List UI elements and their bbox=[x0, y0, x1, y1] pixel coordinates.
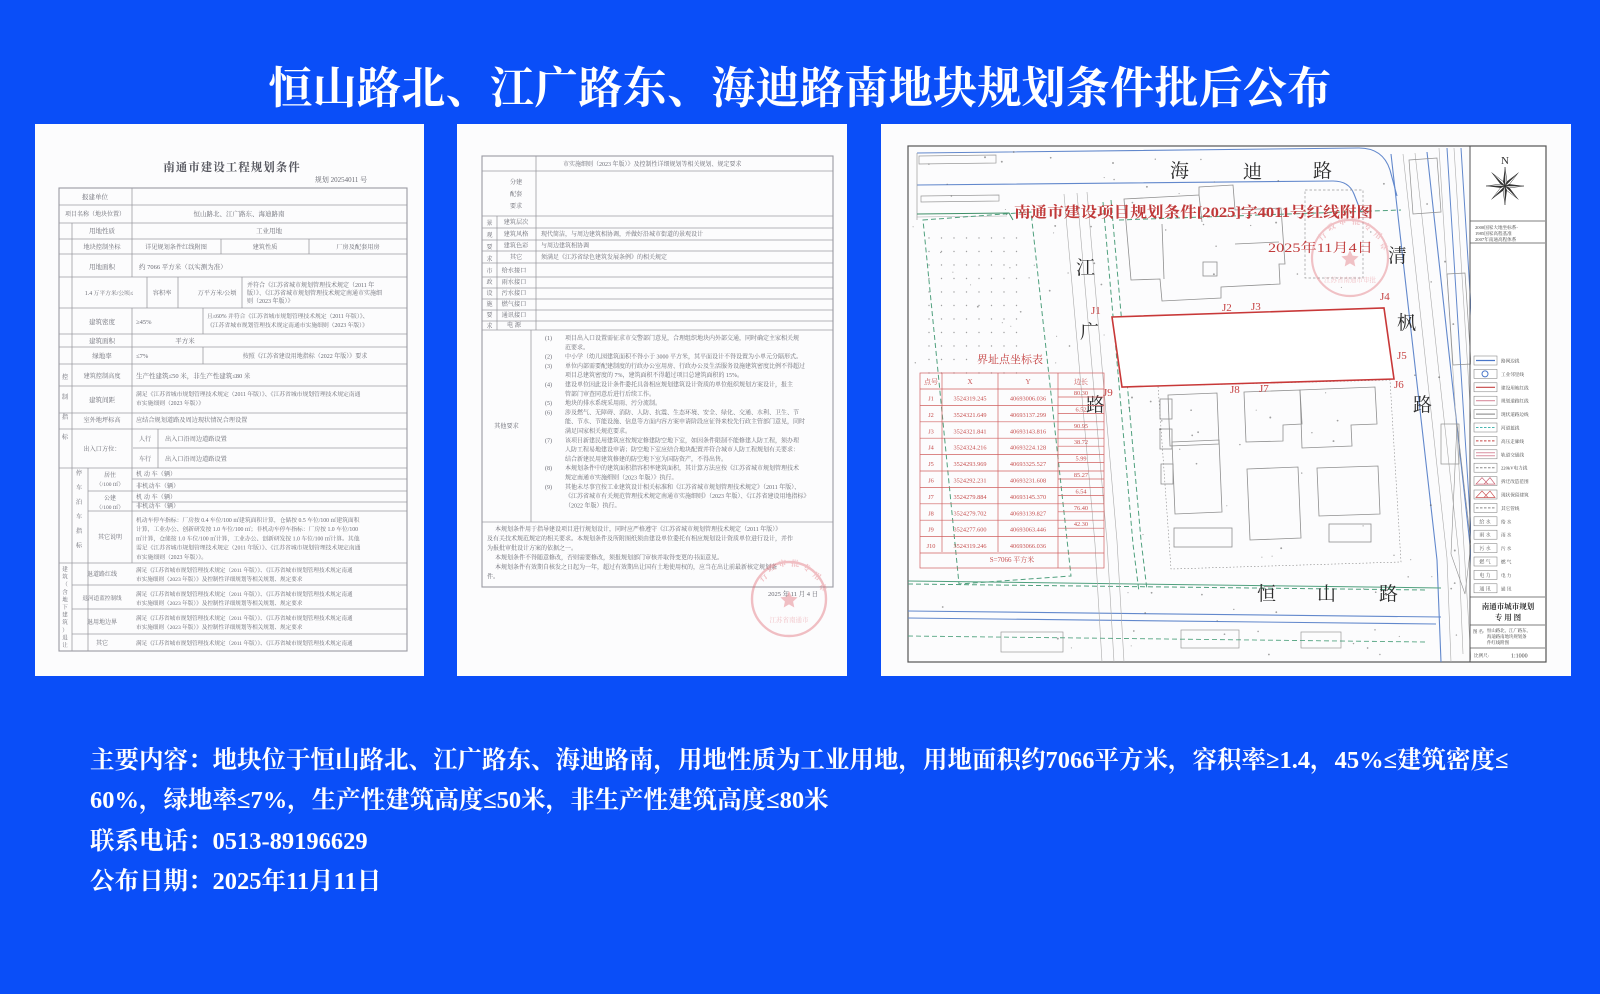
svg-text:《江苏省城市有关规范管理技术规定南通市实施细则》（2023: 《江苏省城市有关规范管理技术规定南通市实施细则》（2023 年版）、《江苏省建设… bbox=[565, 492, 810, 500]
svg-text:现代简洁，与周边建筑相协调，并做好沿城市街道的景观设计: 现代简洁，与周边建筑相协调，并做好沿城市街道的景观设计 bbox=[541, 230, 703, 238]
svg-text:且≤60% 并符合《江苏省城市规划管理技术规定（2011: 且≤60% 并符合《江苏省城市规划管理技术规定（2011 年版）》、 bbox=[207, 312, 368, 320]
svg-text:清: 清 bbox=[1388, 245, 1407, 267]
svg-text:退道路红线: 退道路红线 bbox=[87, 570, 117, 578]
svg-text:应结合规划道路及周边现状情况合理设置: 应结合规划道路及周边现状情况合理设置 bbox=[136, 416, 247, 424]
svg-text:按照《江苏省建设用地指标（2022 年版）》要求: 按照《江苏省建设用地指标（2022 年版）》要求 bbox=[243, 352, 368, 360]
svg-text:要: 要 bbox=[486, 243, 492, 251]
svg-text:电 源: 电 源 bbox=[507, 321, 522, 329]
svg-text:范要求。: 范要求。 bbox=[565, 343, 589, 351]
svg-text:停: 停 bbox=[76, 469, 83, 477]
svg-text:指: 指 bbox=[62, 413, 68, 421]
svg-text:机动车停车指标：厂房按 0.4 车位/100 ㎡建筑面积计算: 机动车停车指标：厂房按 0.4 车位/100 ㎡建筑面积计算，仓储按 0.5 车… bbox=[136, 516, 360, 524]
svg-text:满足《江苏省城市规划管理技术规定（2011 年版）》、《江苏: 满足《江苏省城市规划管理技术规定（2011 年版）》、《江苏省城市规划管理技术规… bbox=[136, 390, 361, 398]
svg-text:3524277.600: 3524277.600 bbox=[953, 527, 986, 534]
svg-text:40693325.527: 40693325.527 bbox=[1010, 461, 1046, 468]
svg-text:标: 标 bbox=[76, 542, 83, 550]
svg-text:电 力: 电 力 bbox=[1479, 572, 1490, 579]
svg-text:件红线附图: 件红线附图 bbox=[1487, 639, 1510, 646]
svg-text:(9): (9) bbox=[545, 484, 552, 491]
svg-text:J6: J6 bbox=[928, 478, 934, 485]
svg-text:J8: J8 bbox=[928, 510, 934, 517]
svg-text:南通市建设项目规划条件[2025]字4011号红线附图: 南通市建设项目规划条件[2025]字4011号红线附图 bbox=[1014, 203, 1373, 221]
svg-text:2000国家大地坐标系-: 2000国家大地坐标系- bbox=[1475, 224, 1518, 231]
svg-text:2025年11月4日: 2025年11月4日 bbox=[1268, 240, 1373, 255]
svg-text:制: 制 bbox=[62, 393, 68, 401]
svg-text:其他未尽事宜按工业建筑设计相关标准和《江苏省城市规划管理技术: 其他未尽事宜按工业建筑设计相关标准和《江苏省城市规划管理技术规定》（2011 年… bbox=[565, 483, 800, 491]
svg-text:1:1000: 1:1000 bbox=[1511, 654, 1528, 660]
svg-text:其它: 其它 bbox=[510, 253, 522, 261]
svg-text:界址点坐标表: 界址点坐标表 bbox=[977, 352, 1043, 366]
svg-text:高压走廊线: 高压走廊线 bbox=[1501, 438, 1524, 445]
svg-text:项目总建筑密度的 7%，建筑面积不得超过项目总建筑面积的 1: 项目总建筑密度的 7%，建筑面积不得超过项目总建筑面积的 15%。 bbox=[565, 371, 743, 379]
svg-text:工业用地: 工业用地 bbox=[256, 226, 283, 235]
svg-text:85.27: 85.27 bbox=[1074, 472, 1088, 479]
svg-text:燃气接口: 燃气接口 bbox=[502, 300, 527, 308]
svg-text:边长: 边长 bbox=[1074, 377, 1088, 386]
svg-text:分建: 分建 bbox=[510, 178, 523, 186]
svg-text:给水接口: 给水接口 bbox=[502, 267, 527, 275]
svg-text:40693063.446: 40693063.446 bbox=[1010, 527, 1046, 534]
svg-text:2025 年 11 月 4 日: 2025 年 11 月 4 日 bbox=[768, 589, 818, 598]
svg-text:市实施细则（2023 年版）》及控制性详细规划等相关规划、规: 市实施细则（2023 年版）》及控制性详细规划等相关规划、规定要求 bbox=[563, 160, 742, 168]
svg-text:绿地率: 绿地率 bbox=[92, 351, 112, 360]
svg-text:图 名:: 图 名: bbox=[1473, 628, 1484, 635]
svg-text:路: 路 bbox=[1413, 394, 1432, 416]
svg-text:地块的排水系统采用雨、污分流制。: 地块的排水系统采用雨、污分流制。 bbox=[565, 399, 661, 407]
svg-text:政: 政 bbox=[486, 278, 492, 286]
svg-text:泊: 泊 bbox=[76, 498, 82, 506]
svg-text:标: 标 bbox=[62, 433, 69, 441]
svg-text:广: 广 bbox=[1080, 321, 1099, 343]
svg-text:燃 气: 燃 气 bbox=[1501, 559, 1512, 566]
svg-text:90.95: 90.95 bbox=[1074, 423, 1088, 430]
svg-text:40693006.036: 40693006.036 bbox=[1010, 396, 1046, 403]
svg-text:版）》、《江苏省城市规划管理技术规定南通市实施细: 版）》、《江苏省城市规划管理技术规定南通市实施细 bbox=[247, 289, 382, 297]
svg-text:≥45%: ≥45% bbox=[136, 319, 152, 326]
svg-text:J3: J3 bbox=[928, 428, 934, 435]
svg-text:（/100 ㎡）: （/100 ㎡） bbox=[96, 503, 124, 511]
svg-text:1.4 万平方米/公顷≤: 1.4 万平方米/公顷≤ bbox=[85, 289, 133, 297]
svg-text:满足国家相关规范要求。: 满足国家相关规范要求。 bbox=[565, 427, 631, 435]
svg-text:给 水: 给 水 bbox=[1501, 518, 1512, 525]
svg-text:让: 让 bbox=[62, 641, 68, 649]
svg-text:40693224.128: 40693224.128 bbox=[1010, 445, 1046, 452]
svg-text:建: 建 bbox=[62, 565, 68, 573]
svg-text:76.40: 76.40 bbox=[1074, 505, 1088, 512]
svg-text:建设单位因此设计条件委托具备相应规划建筑设计资质的单位组织规: 建设单位因此设计条件委托具备相应规划建筑设计资质的单位组织规划方案设计，报主 bbox=[565, 381, 793, 389]
svg-text:建筑面积: 建筑面积 bbox=[89, 336, 116, 345]
svg-text:报建单位: 报建单位 bbox=[82, 192, 109, 201]
svg-text:退用地边界: 退用地边界 bbox=[87, 618, 117, 626]
svg-text:机 动 车（辆）: 机 动 车（辆） bbox=[136, 470, 176, 478]
svg-text:3524321.649: 3524321.649 bbox=[953, 412, 986, 419]
svg-text:3524321.841: 3524321.841 bbox=[953, 428, 986, 435]
svg-text:生产性建筑≤50 米，非生产性建筑≤80 米: 生产性建筑≤50 米，非生产性建筑≤80 米 bbox=[136, 371, 251, 380]
svg-text:40693137.299: 40693137.299 bbox=[1010, 412, 1046, 419]
svg-text:项目出入口设置需征求市交警部门意见，合理组织地块内外部交通，: 项目出入口设置需征求市交警部门意见，合理组织地块内外部交通，同时确定主家相关规 bbox=[565, 334, 799, 342]
svg-text:详见规划条件红线附图: 详见规划条件红线附图 bbox=[145, 243, 207, 251]
svg-text:南通市城市规划: 南通市城市规划 bbox=[1482, 601, 1535, 611]
svg-text:《江苏省城市规划管理技术规定南通市实施细则（2023 年版）: 《江苏省城市规划管理技术规定南通市实施细则（2023 年版）》 bbox=[207, 321, 368, 329]
svg-text:给 水: 给 水 bbox=[1479, 518, 1490, 525]
svg-text:审: 审 bbox=[1338, 217, 1347, 227]
svg-text:计算，工业办公、创新研发按 1.0 车位/100 ㎡；非机动: 计算，工业办公、创新研发按 1.0 车位/100 ㎡；非机动车停车指标：厂房按 … bbox=[136, 525, 358, 533]
svg-text:38.72: 38.72 bbox=[1074, 439, 1088, 446]
svg-text:专: 专 bbox=[801, 561, 812, 573]
svg-text:海: 海 bbox=[1170, 160, 1189, 182]
svg-text:40693066.036: 40693066.036 bbox=[1010, 543, 1046, 550]
svg-text:容积率: 容积率 bbox=[153, 289, 172, 297]
svg-text:≤7%: ≤7% bbox=[136, 353, 149, 360]
svg-text:退河道蓝控制线: 退河道蓝控制线 bbox=[82, 594, 122, 602]
svg-text:(8): (8) bbox=[545, 465, 552, 472]
svg-text:建筑性质: 建筑性质 bbox=[253, 243, 278, 251]
svg-text:公建: 公建 bbox=[104, 494, 116, 502]
svg-text:J10: J10 bbox=[927, 543, 936, 550]
svg-text:景: 景 bbox=[486, 219, 492, 227]
svg-text:）: ） bbox=[62, 627, 68, 634]
svg-text:J8: J8 bbox=[1230, 384, 1240, 396]
svg-text:规划 20254011 号: 规划 20254011 号 bbox=[315, 175, 367, 184]
svg-text:J5: J5 bbox=[928, 461, 934, 468]
svg-text:为报批审批设计方案的依据之一。: 为报批审批设计方案的依据之一。 bbox=[487, 544, 577, 552]
svg-text:与周边建筑相协调: 与周边建筑相协调 bbox=[541, 242, 589, 250]
svg-text:(2): (2) bbox=[545, 354, 552, 361]
svg-text:该项目新建民用建筑应按规定修建防空地下室，如因条件限制不能修: 该项目新建民用建筑应按规定修建防空地下室，如因条件限制不能修建人防工程，须办理 bbox=[565, 436, 799, 444]
svg-text:山: 山 bbox=[1317, 583, 1336, 605]
svg-text:污 水: 污 水 bbox=[1479, 545, 1490, 552]
svg-text:设: 设 bbox=[486, 289, 492, 297]
svg-text:行: 行 bbox=[757, 571, 770, 584]
svg-text:建设用地红线: 建设用地红线 bbox=[1501, 384, 1529, 391]
svg-text:车行: 车行 bbox=[139, 455, 151, 463]
svg-text:J1: J1 bbox=[1091, 305, 1101, 317]
svg-text:枫: 枫 bbox=[1397, 312, 1416, 334]
svg-text:40693231.608: 40693231.608 bbox=[1010, 478, 1046, 485]
svg-text:市实施细则（2023 年版）》: 市实施细则（2023 年版）》 bbox=[136, 399, 204, 407]
svg-text:退: 退 bbox=[62, 633, 68, 641]
svg-text:6.54: 6.54 bbox=[1075, 488, 1087, 495]
svg-text:中小学（幼儿园建筑面积不得小于 3000 平方米，其平面设计: 中小学（幼儿园建筑面积不得小于 3000 平方米，其平面设计不得设置为小单元分隔… bbox=[565, 353, 802, 361]
svg-text:J7: J7 bbox=[1259, 383, 1269, 395]
svg-text:建: 建 bbox=[62, 611, 68, 619]
svg-text:专 用 图: 专 用 图 bbox=[1495, 612, 1522, 622]
svg-text:恒山路北、江广路东、: 恒山路北、江广路东、 bbox=[1487, 627, 1531, 634]
svg-text:J6: J6 bbox=[1394, 379, 1404, 391]
svg-text:地: 地 bbox=[62, 595, 68, 603]
svg-text:恒山路北、江广路东、海迪路南: 恒山路北、江广路东、海迪路南 bbox=[194, 209, 286, 218]
svg-text:出入口方位：: 出入口方位： bbox=[83, 445, 120, 453]
svg-text:通 讯: 通 讯 bbox=[1479, 585, 1490, 592]
svg-text:指: 指 bbox=[76, 527, 82, 535]
svg-text:件。: 件。 bbox=[487, 573, 499, 581]
svg-text:现状道路边线: 现状道路边线 bbox=[1501, 411, 1529, 418]
svg-text:满足《江苏省城市规划管理技术规定（2011 年版）》、《江苏: 满足《江苏省城市规划管理技术规定（2011 年版）》、《江苏省城市规划管理技术规… bbox=[136, 566, 353, 574]
svg-text:比例尺:: 比例尺: bbox=[1474, 652, 1489, 659]
svg-text:J4: J4 bbox=[1380, 291, 1390, 303]
svg-text:㎡计算，仓储按 1.0 车位/100 ㎡计算，工业办公、创新: ㎡计算，仓储按 1.0 车位/100 ㎡计算，工业办公、创新研发按 1.0 车位… bbox=[136, 534, 360, 542]
svg-text:控: 控 bbox=[62, 373, 68, 381]
svg-text:含: 含 bbox=[62, 588, 68, 596]
svg-text:南通市建设工程规划条件: 南通市建设工程规划条件 bbox=[163, 160, 301, 174]
svg-text:其它: 其它 bbox=[96, 639, 108, 647]
svg-text:车: 车 bbox=[76, 484, 82, 492]
svg-text:本规划条件中的建筑面积指容积率建筑面积，其计算方法应按《江苏: 本规划条件中的建筑面积指容积率建筑面积，其计算方法应按《江苏省城市规划管理技术 bbox=[565, 464, 799, 472]
svg-text:则（2023 年版）》: 则（2023 年版）》 bbox=[247, 297, 294, 305]
svg-text:通 讯: 通 讯 bbox=[1501, 585, 1512, 592]
svg-text:并符合《江苏省城市规划管理技术规定（2011 年: 并符合《江苏省城市规划管理技术规定（2011 年 bbox=[247, 281, 374, 289]
svg-text:J4: J4 bbox=[928, 445, 934, 452]
svg-text:本规划条件用于指导建设项目进行规划设计，同时应严格遵守《江苏: 本规划条件用于指导建设项目进行规划设计，同时应严格遵守《江苏省城市规划管理技术规… bbox=[495, 525, 781, 533]
svg-text:迪: 迪 bbox=[1243, 161, 1262, 183]
svg-text:市实施细则（2023 年版）》及控制性详细规划等相关规划、规: 市实施细则（2023 年版）》及控制性详细规划等相关规划、规定要求 bbox=[136, 599, 303, 607]
svg-text:其它管线: 其它管线 bbox=[1501, 505, 1520, 512]
svg-text:平方米: 平方米 bbox=[175, 336, 195, 345]
svg-text:出入口沿周边道路设置: 出入口沿周边道路设置 bbox=[165, 455, 227, 463]
svg-text:J5: J5 bbox=[1397, 350, 1407, 362]
svg-text:3524324.216: 3524324.216 bbox=[953, 445, 986, 452]
svg-text:42.30: 42.30 bbox=[1074, 521, 1088, 528]
svg-text:满足《江苏省城市规划管理技术规定（2011 年版）》、《江苏: 满足《江苏省城市规划管理技术规定（2011 年版）》、《江苏省城市规划管理技术规… bbox=[136, 639, 353, 647]
svg-text:80.30: 80.30 bbox=[1074, 390, 1088, 397]
svg-text:(4): (4) bbox=[545, 382, 552, 389]
svg-text:40693139.827: 40693139.827 bbox=[1010, 510, 1046, 517]
svg-text:J7: J7 bbox=[928, 494, 934, 501]
svg-text:通讯接口: 通讯接口 bbox=[502, 311, 527, 319]
svg-text:市实施细则（2023 年版）》及控制性详细规划等相关规划、规: 市实施细则（2023 年版）》及控制性详细规划等相关规划、规定要求 bbox=[136, 623, 303, 631]
svg-text:建筑控制高度: 建筑控制高度 bbox=[83, 372, 120, 380]
svg-text:机 动 车（辆）: 机 动 车（辆） bbox=[136, 493, 176, 501]
svg-text:J2: J2 bbox=[928, 412, 934, 419]
svg-text:项目名称（地块位置）: 项目名称（地块位置） bbox=[65, 210, 125, 218]
svg-text:（: （ bbox=[62, 581, 68, 588]
svg-text:（2022 年版）执行。: （2022 年版）执行。 bbox=[565, 501, 621, 509]
svg-text:及有关技术规范规定的相关要求。本规划条件及所附图纸须由建设单: 及有关技术规范规定的相关要求。本规划条件及所附图纸须由建设单位委托有相应规划设计… bbox=[487, 535, 793, 543]
svg-text:(7): (7) bbox=[545, 437, 552, 444]
svg-text:市: 市 bbox=[486, 267, 492, 275]
svg-text:其他要求: 其他要求 bbox=[494, 422, 519, 430]
svg-text:用地性质: 用地性质 bbox=[89, 226, 116, 235]
svg-text:需足《江苏省城市规划管理技术规定（2011 年版）》、《江苏: 需足《江苏省城市规划管理技术规定（2011 年版）》、《江苏省城市规划管理技术规… bbox=[136, 544, 361, 552]
svg-text:章: 章 bbox=[816, 581, 829, 594]
svg-text:1985国家高程基准: 1985国家高程基准 bbox=[1475, 230, 1512, 237]
svg-text:用地面积: 用地面积 bbox=[89, 262, 116, 271]
svg-text:满足《江苏省城市规划管理技术规定（2011 年版）》、《江苏: 满足《江苏省城市规划管理技术规定（2011 年版）》、《江苏省城市规划管理技术规… bbox=[136, 614, 353, 622]
svg-text:3524279.884: 3524279.884 bbox=[953, 494, 987, 501]
svg-text:约 7066 平方米（以实测为准）: 约 7066 平方米（以实测为准） bbox=[139, 262, 227, 271]
svg-text:市实施细则（2023 年版）》。: 市实施细则（2023 年版）》。 bbox=[136, 553, 207, 561]
svg-text:雨 水: 雨 水 bbox=[1479, 532, 1490, 539]
svg-text:建筑色彩: 建筑色彩 bbox=[504, 242, 529, 250]
svg-text:用: 用 bbox=[1372, 229, 1384, 241]
svg-text:轨道交通线: 轨道交通线 bbox=[1501, 451, 1524, 458]
svg-text:3524292.231: 3524292.231 bbox=[953, 478, 986, 485]
svg-text:电 力: 电 力 bbox=[1501, 572, 1512, 579]
svg-text:现状保留建筑: 现状保留建筑 bbox=[1501, 492, 1529, 499]
svg-text:居住: 居住 bbox=[104, 471, 116, 479]
svg-text:J3: J3 bbox=[1251, 301, 1261, 313]
svg-text:(6): (6) bbox=[545, 409, 552, 416]
svg-text:批: 批 bbox=[791, 558, 800, 569]
svg-text:厂房及配套用房: 厂房及配套用房 bbox=[336, 243, 379, 251]
svg-text:规定南通市实施细则（2023 年版）》执行。: 规定南通市实施细则（2023 年版）》执行。 bbox=[565, 474, 678, 482]
svg-text:施: 施 bbox=[486, 300, 492, 308]
svg-text:雨 水: 雨 水 bbox=[1501, 532, 1512, 539]
svg-text:满足《江苏省城市规划管理技术规定（2011 年版）》、《江苏: 满足《江苏省城市规划管理技术规定（2011 年版）》、《江苏省城市规划管理技术规… bbox=[136, 590, 353, 598]
svg-text:燃 气: 燃 气 bbox=[1479, 559, 1490, 566]
svg-text:地块控制坐标: 地块控制坐标 bbox=[83, 243, 121, 251]
svg-text:建筑密度: 建筑密度 bbox=[89, 317, 116, 326]
svg-text:建筑层次: 建筑层次 bbox=[504, 218, 529, 226]
svg-text:江苏省南通市: 江苏省南通市 bbox=[770, 615, 810, 624]
svg-text:结合新建民用建筑修建的防空地下室为国防资产，不得出售。: 结合新建民用建筑修建的防空地下室为国防资产，不得出售。 bbox=[565, 455, 727, 463]
svg-text:其它说明: 其它说明 bbox=[98, 533, 122, 541]
svg-text:市实施细则（2023 年版）》及控制性详细规划等相关规划、规: 市实施细则（2023 年版）》及控制性详细规划等相关规划、规定要求 bbox=[136, 575, 303, 583]
svg-text:3524319.246: 3524319.246 bbox=[953, 543, 986, 550]
svg-text:本规划条件有效期自核发之日起为一年，超过有效期出让国有土地使: 本规划条件有效期自核发之日起为一年，超过有效期出让国有土地使用权的，应当在出让前… bbox=[495, 563, 777, 571]
svg-text:室外地坪标高: 室外地坪标高 bbox=[83, 416, 120, 424]
svg-text:污 水: 污 水 bbox=[1501, 545, 1512, 552]
svg-text:涉及燃气、无障碍、消防、人防、抗震、生态环境、安全、绿化、交: 涉及燃气、无障碍、消防、人防、抗震、生态环境、安全、绿化、交通、水利、卫生、节 bbox=[565, 408, 799, 416]
svg-text:本规划条件不得随意修改，否则需要修改，须报规划部门审核并取得: 本规划条件不得随意修改，否则需要修改，须报规划部门审核并取得变更的书面意见。 bbox=[495, 554, 723, 562]
svg-text:2007年南通高程体系: 2007年南通高程体系 bbox=[1475, 236, 1517, 243]
svg-text:路: 路 bbox=[1379, 583, 1398, 605]
svg-text:恒: 恒 bbox=[1257, 583, 1276, 605]
svg-text:S=7066 平方米: S=7066 平方米 bbox=[990, 555, 1035, 564]
svg-text:5.99: 5.99 bbox=[1075, 456, 1086, 463]
svg-text:非机动车（辆）: 非机动车（辆） bbox=[136, 482, 179, 490]
svg-text:J1: J1 bbox=[928, 396, 934, 403]
svg-text:要求: 要求 bbox=[510, 202, 522, 210]
svg-text:(3): (3) bbox=[545, 363, 552, 370]
svg-text:出入口沿周边道路设置: 出入口沿周边道路设置 bbox=[165, 435, 227, 443]
svg-text:雨水接口: 雨水接口 bbox=[502, 278, 527, 286]
svg-text:河道蓝线: 河道蓝线 bbox=[1501, 425, 1520, 432]
svg-text:（/100 ㎡）: （/100 ㎡） bbox=[96, 480, 124, 488]
svg-text:220kV电力线: 220kV电力线 bbox=[1501, 465, 1528, 472]
svg-text:能、节水、节能设施、信息等方面内容方案申请阶段应征得来校先行: 能、节水、节能设施、信息等方面内容方案申请阶段应征得来校先行政主管部门意见，同时 bbox=[565, 418, 805, 426]
svg-text:X: X bbox=[967, 378, 972, 386]
svg-text:3524319.245: 3524319.245 bbox=[953, 396, 986, 403]
svg-text:路网边线: 路网边线 bbox=[1501, 358, 1520, 365]
svg-text:海迪路南地块规划条: 海迪路南地块规划条 bbox=[1487, 633, 1527, 640]
svg-text:J9: J9 bbox=[1103, 387, 1113, 399]
svg-text:要: 要 bbox=[486, 311, 492, 319]
svg-text:J2: J2 bbox=[1222, 302, 1232, 314]
svg-text:万平方米/公顷: 万平方米/公顷 bbox=[198, 289, 238, 297]
svg-text:单位内部需要配建制度的行政办公室用房、行政办公及生活服务设施: 单位内部需要配建制度的行政办公室用房、行政办公及生活服务设施建筑密度比例不得超过 bbox=[565, 362, 805, 370]
svg-text:求: 求 bbox=[486, 322, 492, 330]
svg-text:非机动车（辆）: 非机动车（辆） bbox=[136, 502, 179, 510]
svg-text:批: 批 bbox=[1352, 216, 1361, 227]
svg-text:(5): (5) bbox=[545, 400, 552, 407]
svg-text:J9: J9 bbox=[928, 527, 934, 534]
svg-text:审: 审 bbox=[778, 559, 787, 569]
svg-text:规划道路红线: 规划道路红线 bbox=[1501, 398, 1529, 405]
svg-text:配套: 配套 bbox=[510, 190, 522, 198]
svg-text:管部门审查同意后进行后续工作。: 管部门审查同意后进行后续工作。 bbox=[565, 390, 655, 398]
svg-text:拆迁改造范围: 拆迁改造范围 bbox=[1501, 478, 1529, 485]
svg-text:Y: Y bbox=[1025, 378, 1030, 386]
svg-text:车: 车 bbox=[76, 513, 82, 521]
svg-text:3524293.969: 3524293.969 bbox=[953, 461, 986, 468]
svg-text:N: N bbox=[1501, 155, 1509, 167]
svg-text:筑: 筑 bbox=[62, 618, 68, 626]
svg-text:筑: 筑 bbox=[62, 573, 68, 581]
svg-text:(1): (1) bbox=[545, 335, 552, 342]
svg-text:政: 政 bbox=[766, 561, 777, 573]
svg-text:污水接口: 污水接口 bbox=[502, 289, 527, 297]
svg-text:求: 求 bbox=[486, 255, 492, 263]
svg-text:人防工程易地建设申请；防空地下室应结合地块配置并符合城市人防: 人防工程易地建设申请；防空地下室应结合地块配置并符合城市人防工程规划有关要求： bbox=[565, 446, 799, 454]
svg-text:工业邻里线: 工业邻里线 bbox=[1501, 371, 1524, 378]
svg-text:人行: 人行 bbox=[139, 435, 151, 443]
svg-text:江: 江 bbox=[1076, 257, 1095, 279]
svg-text:路: 路 bbox=[1313, 160, 1332, 182]
svg-text:点号: 点号 bbox=[924, 377, 938, 386]
svg-text:40693143.816: 40693143.816 bbox=[1010, 428, 1046, 435]
svg-text:观: 观 bbox=[486, 231, 492, 239]
svg-text:建筑间距: 建筑间距 bbox=[89, 395, 116, 404]
svg-text:江苏省南通市审批: 江苏省南通市审批 bbox=[1324, 275, 1377, 284]
svg-text:建筑风格: 建筑风格 bbox=[504, 230, 529, 238]
svg-text:须满足《江苏省绿色建筑发展条例》的相关规定: 须满足《江苏省绿色建筑发展条例》的相关规定 bbox=[541, 253, 667, 261]
svg-text:40693145.370: 40693145.370 bbox=[1010, 494, 1046, 501]
svg-text:6.52: 6.52 bbox=[1075, 406, 1086, 413]
svg-text:3524279.702: 3524279.702 bbox=[953, 510, 986, 517]
svg-text:下: 下 bbox=[62, 604, 68, 611]
